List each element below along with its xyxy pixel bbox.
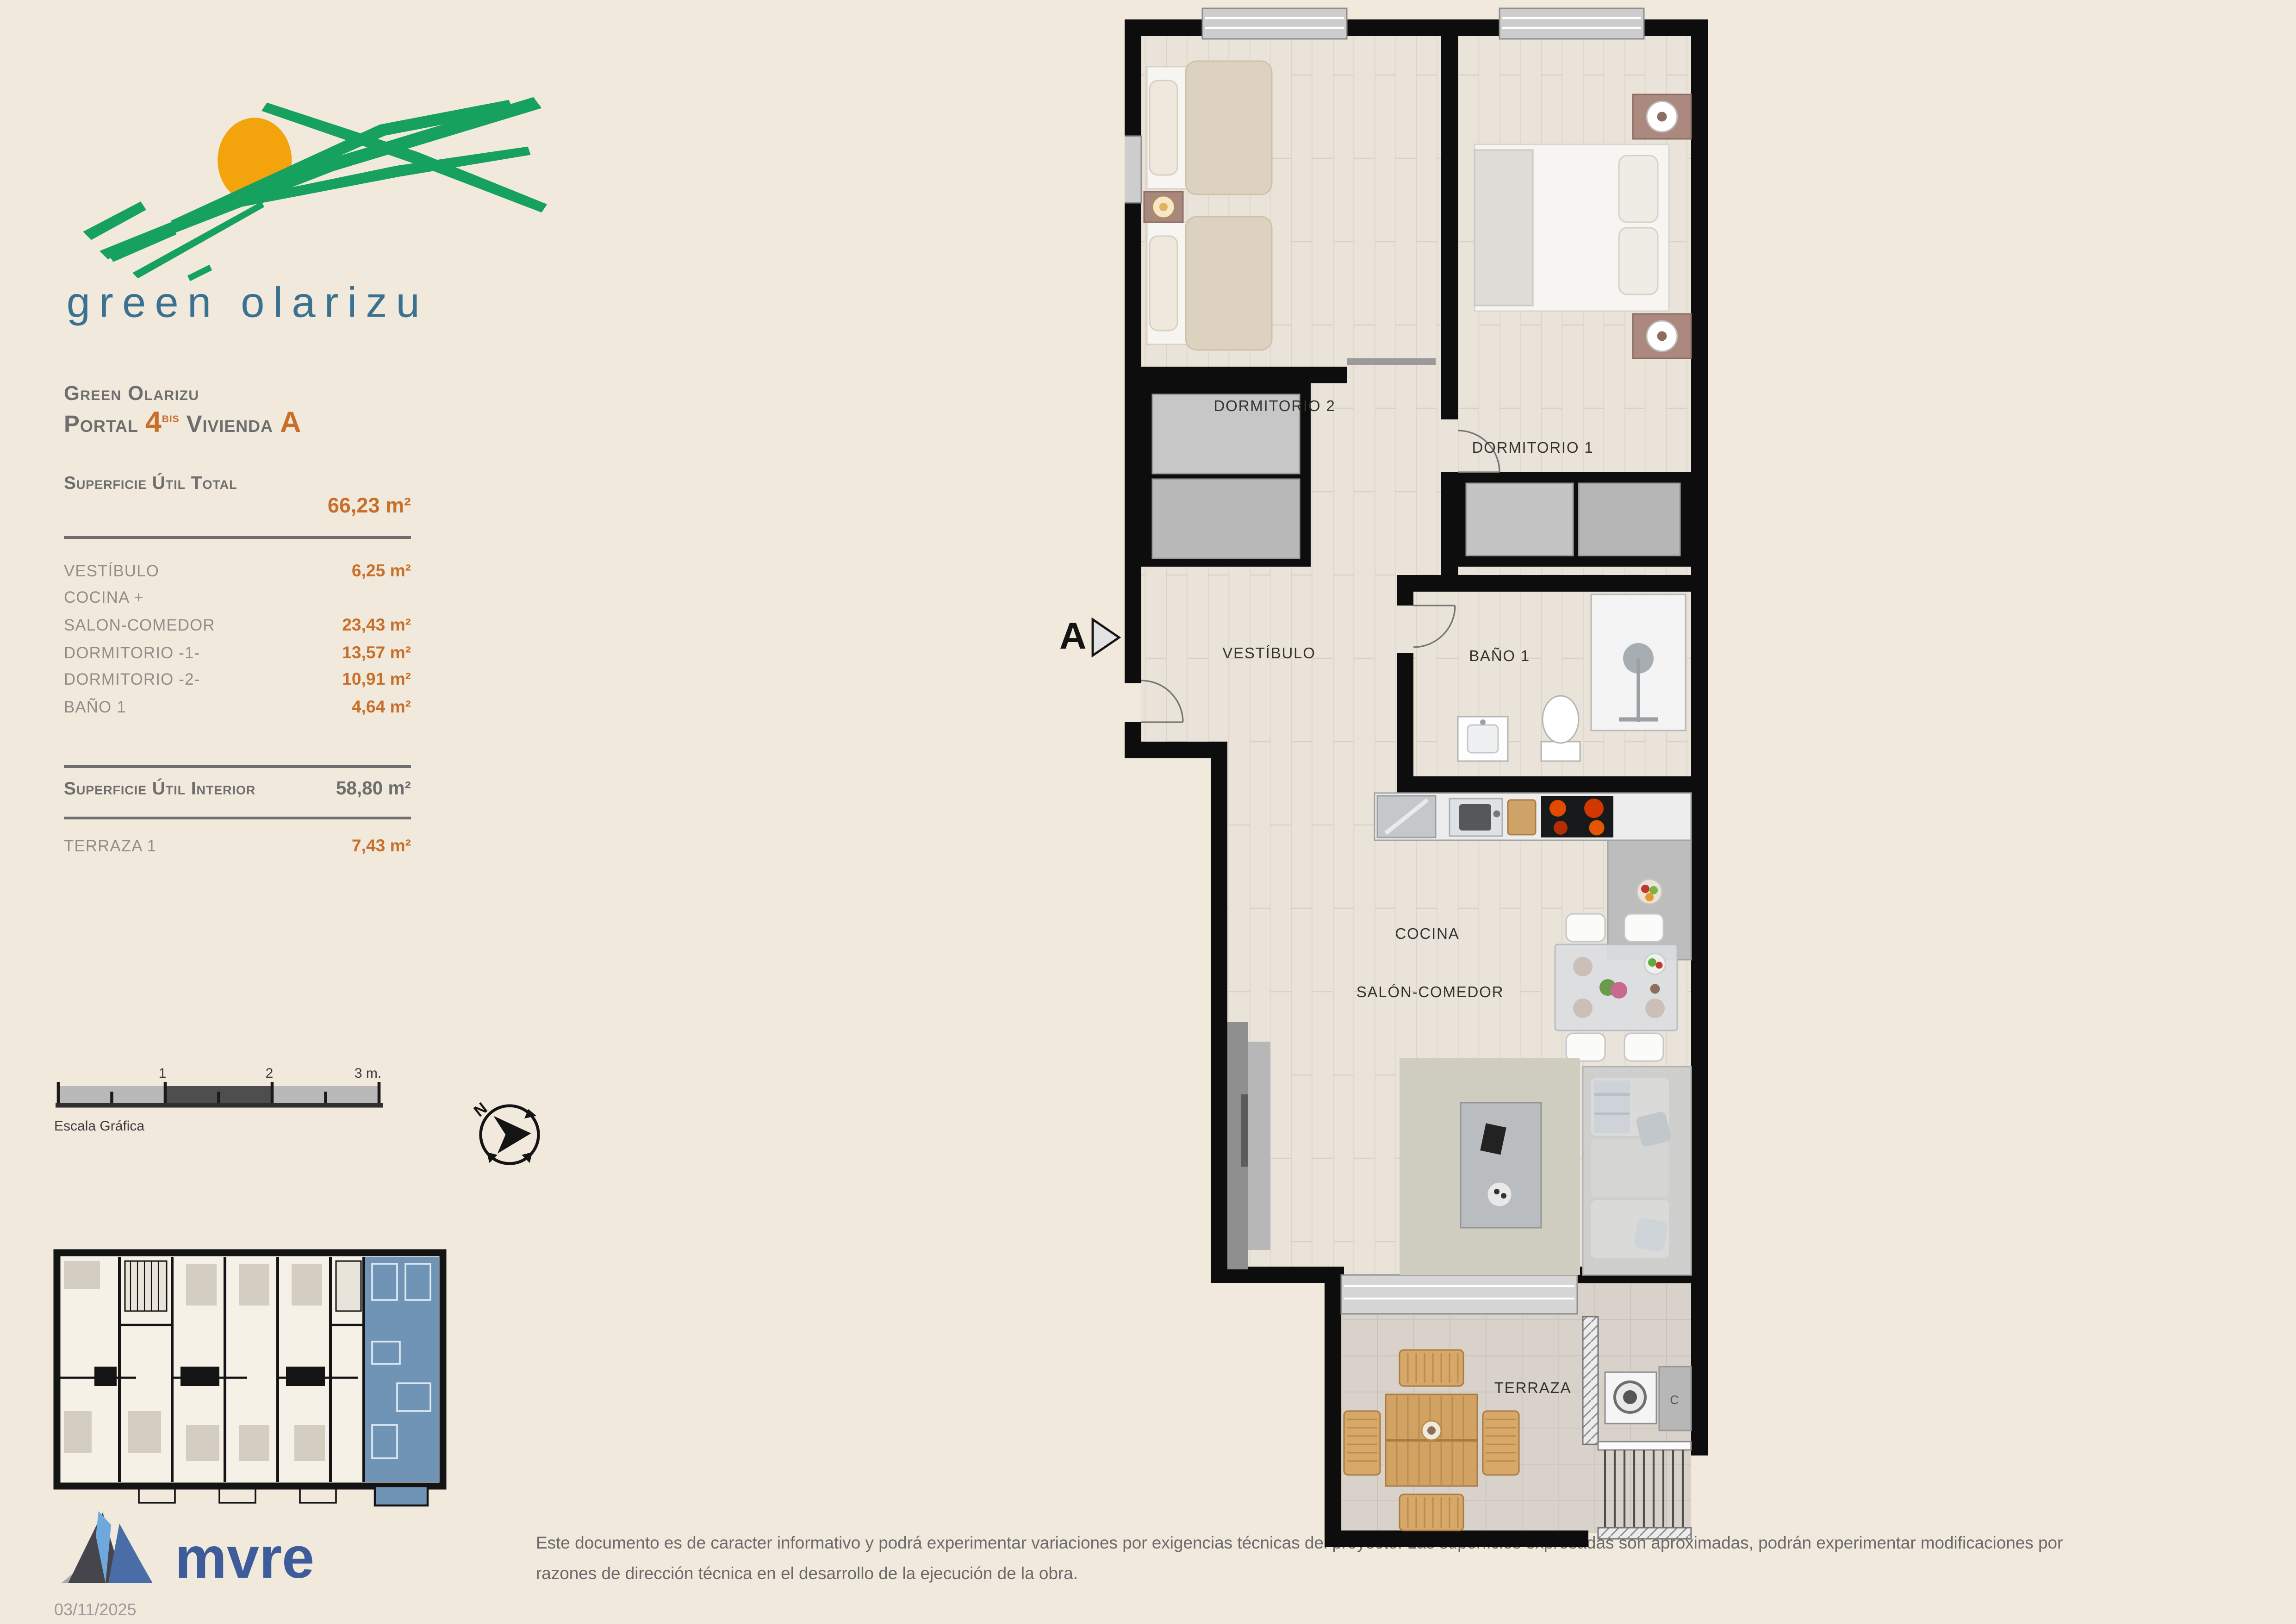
table-row: DORMITORIO -2-10,91 m² xyxy=(64,669,411,697)
dwelling-letter: A xyxy=(280,407,301,439)
dwelling-label: Vivienda xyxy=(187,411,273,437)
room-label-cocina: COCINA xyxy=(1395,925,1459,942)
divider xyxy=(64,817,411,819)
scale-tick-label: 2 xyxy=(266,1066,274,1081)
room-label-bano1: BAÑO 1 xyxy=(1469,647,1530,664)
surface-total-value: 66,23 m² xyxy=(64,494,411,518)
portal-number: 4 xyxy=(145,407,162,439)
room-label-salon-comedor: SALÓN-COMEDOR xyxy=(1356,983,1504,1000)
section-marker-a: A xyxy=(1059,615,1123,658)
interior-surface-row: Superficie Útil Interior 58,80 m² xyxy=(64,778,411,799)
apartment-floor-plan: C DORMITORIO 2 DORMITORIO 1 VESTÍBULO BA… xyxy=(1125,6,1708,1547)
scale-tick-label: 1 xyxy=(159,1066,167,1081)
project-name: Green Olarizu xyxy=(64,383,199,406)
room-label-terraza: TERRAZA xyxy=(1494,1379,1572,1396)
terrace-surface-row: TERRAZA 1 7,43 m² xyxy=(64,836,411,856)
divider xyxy=(64,765,411,768)
key-plan xyxy=(53,1244,450,1517)
portal-suffix: bis xyxy=(162,410,180,426)
graphic-scale-bar: 1 2 3 m. xyxy=(53,1064,386,1125)
mvre-wordmark: mvre xyxy=(175,1534,314,1583)
highlighted-unit xyxy=(364,1257,439,1482)
section-arrow-icon xyxy=(1089,616,1123,658)
mvre-logo: mvre xyxy=(58,1508,314,1583)
scale-caption: Escala Gráfica xyxy=(54,1119,144,1135)
table-row: COCINA + xyxy=(64,588,411,616)
room-label-dormitorio1: DORMITORIO 1 xyxy=(1472,439,1593,456)
scale-tick-label: 3 m. xyxy=(355,1066,381,1081)
portal-label: Portal xyxy=(64,411,138,437)
table-row: BAÑO 14,64 m² xyxy=(64,697,411,724)
room-surface-table: VESTÍBULO6,25 m² COCINA + SALON-COMEDOR2… xyxy=(64,561,411,724)
unit-title: Portal 4bis Vivienda A xyxy=(64,407,301,440)
logo-brush-strokes-icon xyxy=(83,97,547,281)
boiler-label: C xyxy=(1670,1393,1679,1407)
room-label-vestibulo: VESTÍBULO xyxy=(1222,644,1315,662)
mvre-mountains-icon xyxy=(58,1508,169,1583)
surface-total-label: Superficie Útil Total xyxy=(64,472,237,493)
room-label-dormitorio2: DORMITORIO 2 xyxy=(1213,397,1335,414)
floor-plan-sheet: green olarizu Green Olarizu Portal 4bis … xyxy=(0,0,2296,1624)
logo-wordmark: green olarizu xyxy=(67,279,429,326)
divider xyxy=(64,536,411,539)
table-row: SALON-COMEDOR23,43 m² xyxy=(64,615,411,643)
north-compass-icon: N xyxy=(467,1092,553,1178)
table-row: VESTÍBULO6,25 m² xyxy=(64,561,411,588)
table-row: DORMITORIO -1-13,57 m² xyxy=(64,643,411,670)
green-olarizu-logo: green olarizu xyxy=(58,75,553,350)
document-date: 03/11/2025 xyxy=(54,1600,137,1619)
